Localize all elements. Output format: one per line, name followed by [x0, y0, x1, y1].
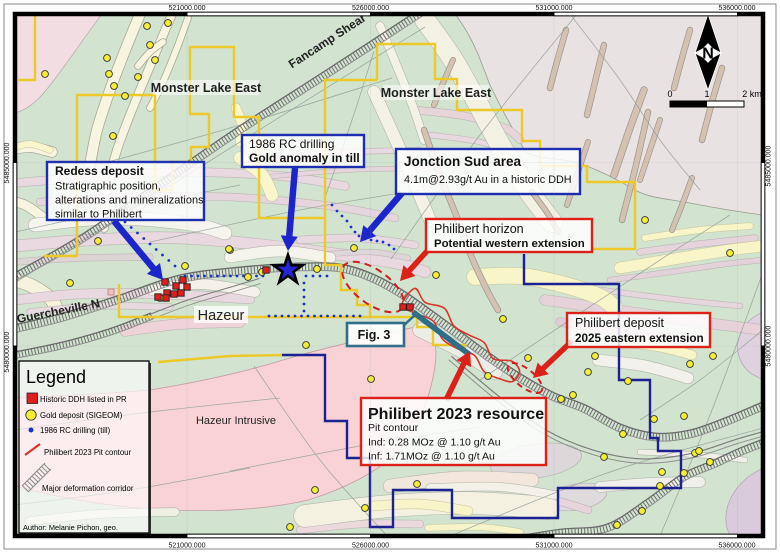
svg-text:Gold anomaly in till: Gold anomaly in till [249, 151, 360, 165]
svg-text:1986 RC drilling: 1986 RC drilling [249, 137, 334, 151]
svg-text:1986 RC drilling (till): 1986 RC drilling (till) [40, 426, 111, 435]
svg-text:2025 eastern extension: 2025 eastern extension [575, 332, 704, 345]
svg-text:Gold deposit (SIGEOM): Gold deposit (SIGEOM) [40, 411, 123, 420]
svg-text:Major deformation corridor: Major deformation corridor [42, 484, 134, 493]
svg-text:531000.000: 531000.000 [536, 543, 573, 550]
svg-text:Inf: 1.71MOz @ 1.10 g/t Au: Inf: 1.71MOz @ 1.10 g/t Au [368, 451, 495, 463]
svg-text:521000.000: 521000.000 [169, 543, 206, 550]
svg-text:Potential western extension: Potential western extension [434, 238, 585, 250]
svg-text:1: 1 [704, 89, 709, 99]
svg-text:536000.000: 536000.000 [719, 5, 756, 12]
svg-text:2 km: 2 km [742, 89, 762, 99]
svg-text:5485000.000: 5485000.000 [766, 145, 773, 186]
svg-text:Hazeur: Hazeur [198, 308, 245, 324]
svg-text:5480000.000: 5480000.000 [766, 325, 773, 366]
svg-text:N: N [702, 46, 714, 63]
svg-text:4.1m@2.93g/t Au in a historic: 4.1m@2.93g/t Au in a historic DDH [404, 174, 572, 186]
svg-text:Monster Lake East: Monster Lake East [151, 81, 262, 95]
svg-text:5480000.000: 5480000.000 [4, 331, 11, 372]
svg-text:Pit contour: Pit contour [368, 422, 419, 434]
svg-text:536000.000: 536000.000 [719, 543, 756, 550]
svg-text:531000.000: 531000.000 [536, 5, 573, 12]
svg-text:Fig. 3: Fig. 3 [358, 328, 391, 342]
svg-text:Ind: 0.28 MOz @ 1.10 g/t Au: Ind: 0.28 MOz @ 1.10 g/t Au [368, 437, 501, 449]
svg-text:Legend: Legend [26, 367, 86, 387]
svg-text:Philibert horizon: Philibert horizon [434, 222, 524, 236]
svg-text:Historic DDH listed in PR: Historic DDH listed in PR [40, 395, 127, 404]
svg-text:Author: Melanie Pichon, geo.: Author: Melanie Pichon, geo. [23, 523, 118, 532]
svg-text:Stratigraphic position,: Stratigraphic position, [55, 181, 161, 193]
svg-text:Monster Lake East: Monster Lake East [381, 86, 492, 100]
svg-text:alterations and mineralization: alterations and mineralizations [55, 195, 204, 207]
svg-text:Redess deposit: Redess deposit [55, 164, 144, 178]
svg-text:526000.000: 526000.000 [352, 543, 389, 550]
svg-text:Philibert deposit: Philibert deposit [575, 316, 664, 330]
svg-text:Jonction Sud area: Jonction Sud area [404, 154, 522, 169]
svg-text:Philibert 2023 Pit contour: Philibert 2023 Pit contour [44, 448, 132, 457]
svg-text:Hazeur Intrusive: Hazeur Intrusive [196, 415, 276, 427]
svg-text:521000.000: 521000.000 [169, 5, 206, 12]
svg-text:similar to Philibert: similar to Philibert [55, 209, 142, 221]
svg-text:526000.000: 526000.000 [352, 5, 389, 12]
svg-text:Philibert 2023 resource: Philibert 2023 resource [368, 406, 544, 423]
svg-text:5485000.000: 5485000.000 [4, 142, 11, 183]
svg-text:0: 0 [667, 89, 672, 99]
